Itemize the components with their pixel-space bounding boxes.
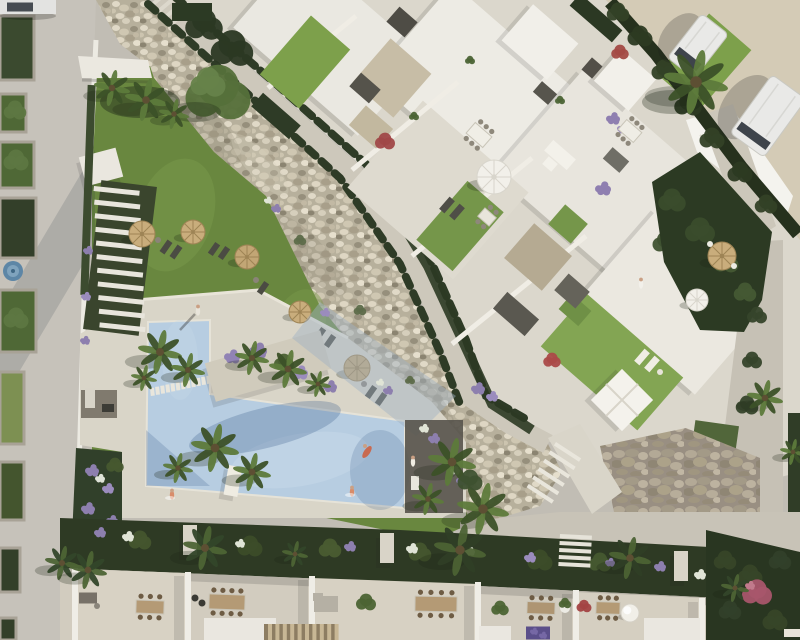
stool bbox=[199, 600, 206, 607]
wood-dining-table bbox=[527, 595, 556, 621]
street-planter bbox=[0, 462, 24, 520]
gate-post bbox=[670, 551, 688, 586]
terrace-divider-wall bbox=[573, 590, 579, 640]
side-table bbox=[657, 369, 663, 375]
street-planter bbox=[0, 548, 20, 592]
hedge-block bbox=[172, 3, 212, 21]
garden-chair bbox=[707, 241, 713, 247]
terrace-divider-wall bbox=[185, 572, 191, 640]
garden-chair bbox=[731, 263, 737, 269]
car-glass bbox=[7, 3, 33, 12]
street-planter bbox=[0, 372, 24, 444]
stool bbox=[192, 595, 199, 602]
person-head bbox=[363, 444, 367, 448]
side-table bbox=[155, 237, 161, 243]
pool-shadow bbox=[350, 430, 410, 510]
wood-dining-table bbox=[136, 593, 165, 620]
white-lounger bbox=[784, 629, 800, 637]
street-planter bbox=[0, 618, 16, 640]
terrace-desk bbox=[79, 593, 97, 604]
splash bbox=[165, 496, 175, 500]
divider-shadow bbox=[464, 586, 474, 640]
terrace-table bbox=[411, 476, 419, 490]
side-table bbox=[253, 277, 259, 283]
bbq-grill bbox=[102, 404, 114, 412]
render-canvas bbox=[0, 0, 800, 640]
blue-fountain-center bbox=[11, 269, 15, 273]
street-planter bbox=[0, 198, 36, 258]
person-standing-deck bbox=[196, 305, 200, 316]
hedge-edge bbox=[788, 413, 800, 523]
person-seated bbox=[411, 456, 415, 467]
terrace-sofa bbox=[313, 593, 323, 601]
street-planter bbox=[0, 16, 34, 80]
lower-room bbox=[644, 618, 700, 640]
aerial-site-render bbox=[0, 0, 800, 640]
divider-shadow bbox=[174, 576, 184, 640]
terrace-chair bbox=[94, 603, 100, 609]
wood-dining-table bbox=[596, 595, 621, 621]
person-on-path bbox=[639, 278, 643, 289]
gate-post bbox=[376, 533, 394, 568]
bbq-counter bbox=[85, 388, 95, 408]
splash bbox=[345, 493, 355, 497]
lower-room bbox=[479, 626, 511, 640]
